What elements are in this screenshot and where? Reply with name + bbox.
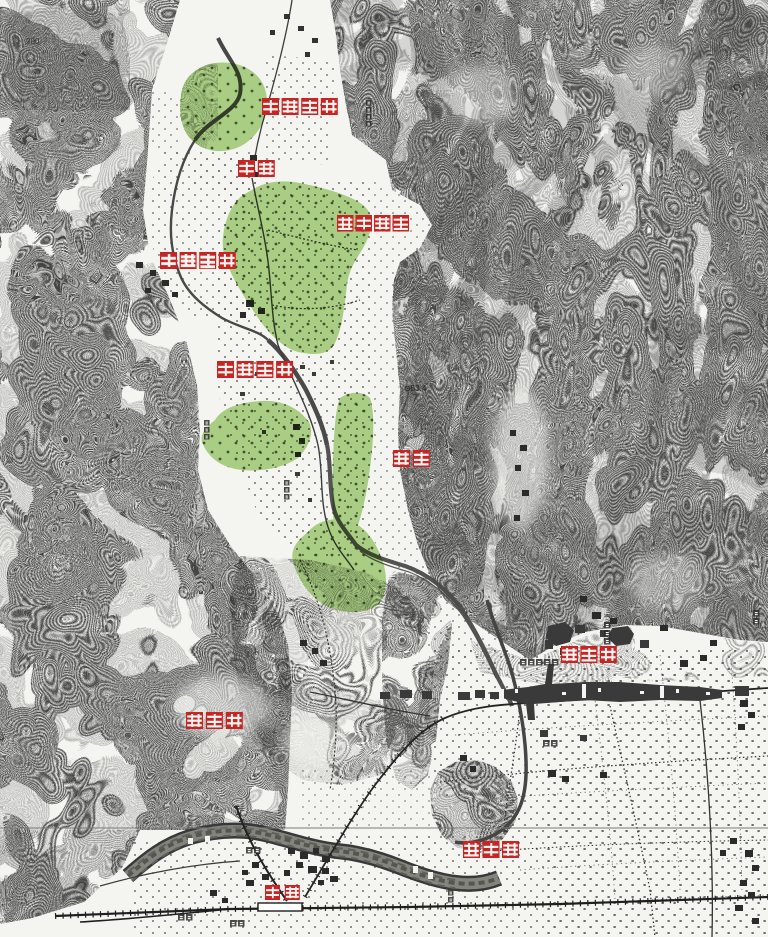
svg-text:200: 200	[26, 37, 40, 46]
svg-text:⊙53.4: ⊙53.4	[404, 384, 427, 393]
